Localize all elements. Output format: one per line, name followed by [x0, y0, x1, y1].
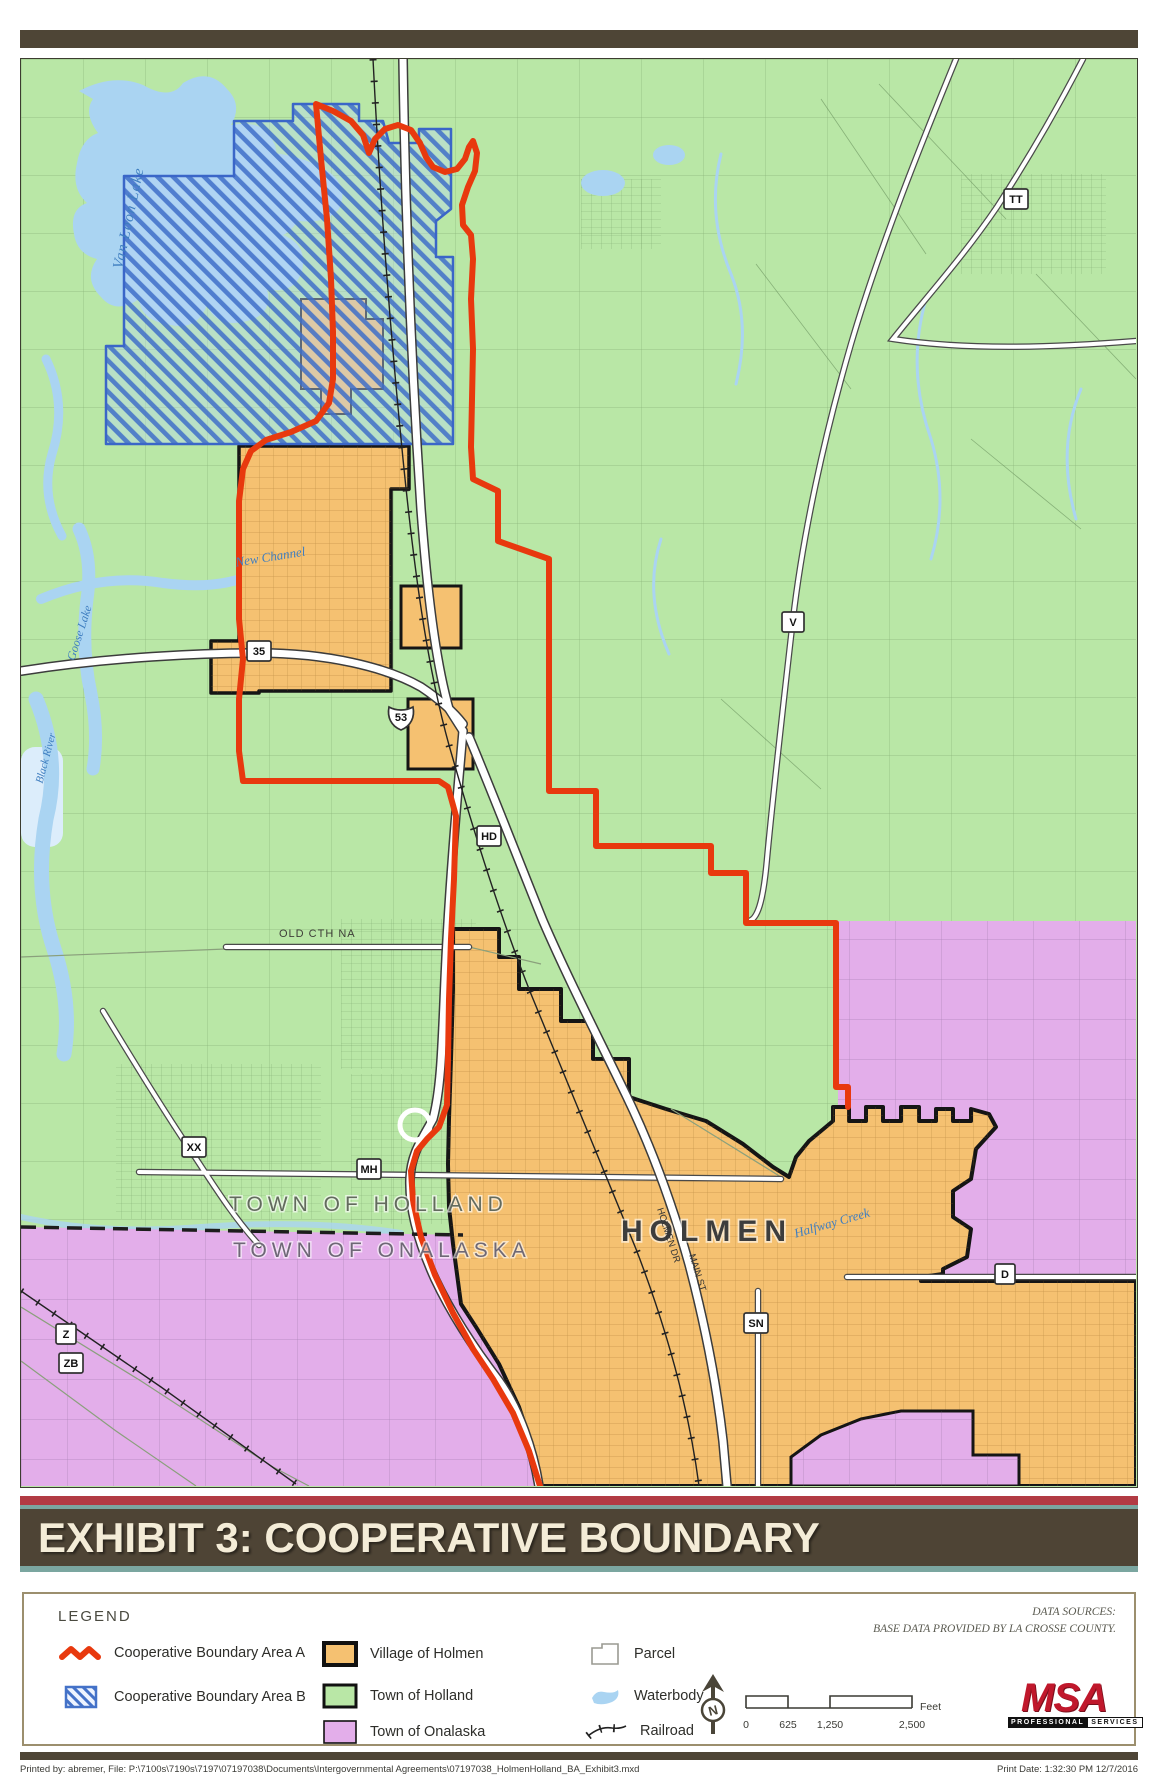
legend-panel: LEGEND Cooperative Boundary Area A Coope…: [22, 1592, 1136, 1746]
legend-label-area-a: Cooperative Boundary Area A: [114, 1645, 305, 1661]
title-stripe-teal-bottom: [20, 1566, 1138, 1572]
holland-swatch: [320, 1682, 360, 1710]
area-b-symbol: [58, 1684, 104, 1710]
svg-text:V: V: [789, 617, 797, 629]
svg-text:D: D: [1001, 1269, 1009, 1281]
legend-heading: LEGEND: [58, 1608, 132, 1625]
legend-item-area-a: Cooperative Boundary Area A: [58, 1642, 305, 1664]
legend-label-area-b: Cooperative Boundary Area B: [114, 1689, 306, 1705]
holmen-label: HOLMEN: [621, 1215, 793, 1248]
shield-z: Z: [56, 1324, 76, 1344]
svg-text:35: 35: [253, 646, 265, 658]
footer-print-date: Print Date: 1:32:30 PM 12/7/2016: [997, 1764, 1138, 1775]
title-bar: EXHIBIT 3: COOPERATIVE BOUNDARY: [20, 1509, 1138, 1566]
shield-tt: TT: [1004, 189, 1028, 209]
data-sources-line2: BASE DATA PROVIDED BY LA CROSSE COUNTY.: [873, 1621, 1116, 1638]
footer-accent-bar: [20, 1752, 1138, 1760]
svg-text:53: 53: [395, 712, 407, 724]
legend-item-waterbody: Waterbody: [584, 1682, 704, 1710]
town-of-holland-label: TOWN OF HOLLAND: [229, 1193, 508, 1216]
svg-text:MH: MH: [360, 1164, 377, 1176]
legend-label-holland: Town of Holland: [370, 1688, 473, 1704]
legend-item-railroad: Railroad: [584, 1718, 694, 1744]
legend-label-parcel: Parcel: [634, 1646, 675, 1662]
data-sources-line1: DATA SOURCES:: [873, 1604, 1116, 1621]
map-canvas: Van Loon Lake Goose Lake Black River New…: [20, 58, 1138, 1488]
svg-text:SN: SN: [748, 1318, 763, 1330]
scale-tick-1250: 1,250: [817, 1719, 843, 1731]
old-cth-na-label: OLD CTH NA: [279, 928, 356, 940]
svg-text:XX: XX: [187, 1142, 202, 1154]
page-title: EXHIBIT 3: COOPERATIVE BOUNDARY: [20, 1514, 820, 1562]
data-sources: DATA SOURCES: BASE DATA PROVIDED BY LA C…: [873, 1604, 1116, 1639]
msa-tagline-services: SERVICES: [1087, 1717, 1142, 1728]
legend-label-railroad: Railroad: [640, 1723, 694, 1739]
shield-d: D: [995, 1264, 1015, 1284]
legend-item-area-b: Cooperative Boundary Area B: [58, 1684, 306, 1710]
town-of-onalaska-label: TOWN OF ONALASKA: [233, 1239, 531, 1262]
legend-item-parcel: Parcel: [584, 1640, 675, 1668]
svg-text:Z: Z: [63, 1329, 70, 1341]
title-stripe-red: [20, 1496, 1138, 1505]
area-a-symbol: [58, 1642, 104, 1664]
waterbody-symbol: [584, 1682, 624, 1710]
scale-tick-625: 625: [779, 1719, 797, 1731]
shield-mh: MH: [357, 1159, 381, 1179]
msa-tagline: PROFESSIONAL SERVICES: [1008, 1717, 1120, 1728]
legend-item-holland: Town of Holland: [320, 1682, 473, 1710]
shield-sn: SN: [744, 1313, 768, 1333]
railroad-symbol: [584, 1718, 630, 1744]
svg-text:TT: TT: [1009, 194, 1023, 206]
legend-label-onalaska: Town of Onalaska: [370, 1724, 485, 1740]
north-arrow: N: [692, 1672, 734, 1742]
legend-item-holmen: Village of Holmen: [320, 1640, 483, 1668]
scale-tick-2500: 2,500: [899, 1719, 925, 1731]
shield-35: 35: [247, 641, 271, 661]
scale-bar: Feet 0 625 1,250 2,500: [742, 1686, 992, 1734]
msa-logo-text: MSA: [1008, 1681, 1120, 1715]
shield-hd: HD: [477, 826, 501, 846]
msa-tagline-professional: PROFESSIONAL: [1008, 1717, 1087, 1728]
legend-label-holmen: Village of Holmen: [370, 1646, 483, 1662]
shield-zb: ZB: [59, 1353, 83, 1373]
top-accent-bar: [20, 30, 1138, 48]
shield-xx: XX: [182, 1137, 206, 1157]
parcel-symbol: [584, 1640, 624, 1668]
footer-print-info: Printed by: abremer, File: P:\7100s\7190…: [20, 1764, 639, 1775]
map-svg: Van Loon Lake Goose Lake Black River New…: [21, 59, 1136, 1486]
holmen-swatch: [320, 1640, 360, 1668]
scale-unit: Feet: [920, 1701, 941, 1713]
shield-v: V: [782, 612, 804, 632]
svg-text:HD: HD: [481, 831, 497, 843]
msa-logo: MSA PROFESSIONAL SERVICES: [1008, 1681, 1120, 1728]
legend-item-onalaska: Town of Onalaska: [320, 1718, 485, 1746]
scale-tick-0: 0: [743, 1719, 749, 1731]
onalaska-swatch: [320, 1718, 360, 1746]
svg-text:ZB: ZB: [64, 1358, 79, 1370]
